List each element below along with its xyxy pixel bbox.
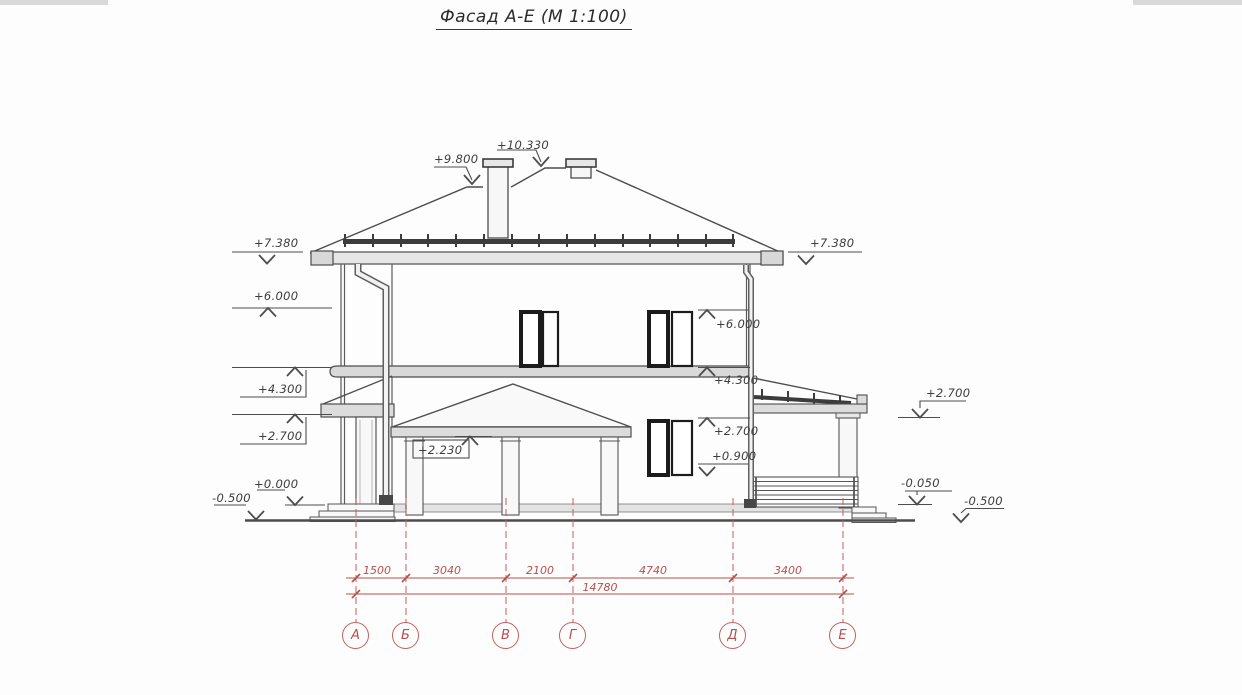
leader-zero	[257, 490, 325, 505]
elevation-mark-terrace-2700: +2.700	[926, 386, 970, 400]
elevation-mark-10330: +10.330	[497, 138, 549, 152]
elevation-mark-inner-4300: +4.300	[714, 373, 758, 387]
elevation-mark-9800: +9.800	[434, 152, 478, 166]
axis-bubble-d: Д	[719, 622, 746, 649]
elevation-mark-m0050: -0.050	[901, 476, 940, 490]
elevation-mark-left-m0500: -0.500	[212, 491, 251, 505]
snow-guard-main-roof	[343, 234, 735, 247]
left-steps	[310, 504, 395, 522]
dimension-d-e: 3400	[766, 564, 810, 577]
window-2f-left	[521, 312, 558, 366]
roof	[310, 159, 783, 265]
elevation-mark-left-2700: +2.700	[258, 429, 302, 443]
elevation-mark-left-7380: +7.380	[254, 236, 298, 250]
axis-grid-lines	[356, 498, 843, 622]
eaves-fascia	[311, 251, 783, 265]
drawing-title: Фасад А-Е (М 1:100)	[436, 7, 632, 30]
dimension-b-v: 3040	[425, 564, 469, 577]
facade-drawing-sheet: Фасад А-Е (М 1:100) +9.800 +10.330 +7.38…	[0, 0, 1242, 695]
leader-left-7380	[232, 252, 303, 264]
leader-right-7380	[788, 252, 862, 264]
leader-inner-0900	[698, 464, 748, 476]
dimension-g-d: 4740	[631, 564, 675, 577]
window-2f-right	[649, 312, 692, 366]
axis-bubble-g: Г	[559, 622, 586, 649]
elevation-mark-inner-0900: +0.900	[712, 449, 756, 463]
axis-bubble-a: А	[342, 622, 369, 649]
axis-bubble-e: Е	[829, 622, 856, 649]
axis-bubble-b: Б	[392, 622, 419, 649]
chimney-tall	[483, 159, 513, 238]
leader-terrace-2700	[898, 401, 966, 418]
dimension-total: 14780	[578, 581, 622, 594]
elevation-mark-zero: +0.000	[254, 477, 298, 491]
dimension-v-g: 2100	[518, 564, 562, 577]
leader-9800	[434, 167, 480, 184]
terrace-railing	[752, 477, 858, 507]
terrace	[748, 377, 896, 523]
elevation-mark-inner-6000: +6.000	[716, 317, 760, 331]
elevation-mark-inner-2700: +2.700	[714, 424, 758, 438]
leader-right-m0500	[953, 509, 1004, 523]
elevation-mark-left-4300: +4.300	[258, 382, 302, 396]
elevation-mark-right-m0500: -0.500	[964, 494, 1003, 508]
axis-bubble-v: В	[492, 622, 519, 649]
elevation-mark-left-6000: +6.000	[254, 289, 298, 303]
elevation-mark-right-7380: +7.380	[810, 236, 854, 250]
dimension-a-b: 1500	[355, 564, 399, 577]
leader-m0050	[898, 491, 952, 505]
window-1f	[649, 421, 692, 475]
chimney-short	[566, 159, 596, 178]
leader-left-6000	[232, 308, 332, 317]
elevation-mark-2230: +2.230	[418, 443, 462, 457]
leader-left-m0500	[214, 505, 264, 520]
